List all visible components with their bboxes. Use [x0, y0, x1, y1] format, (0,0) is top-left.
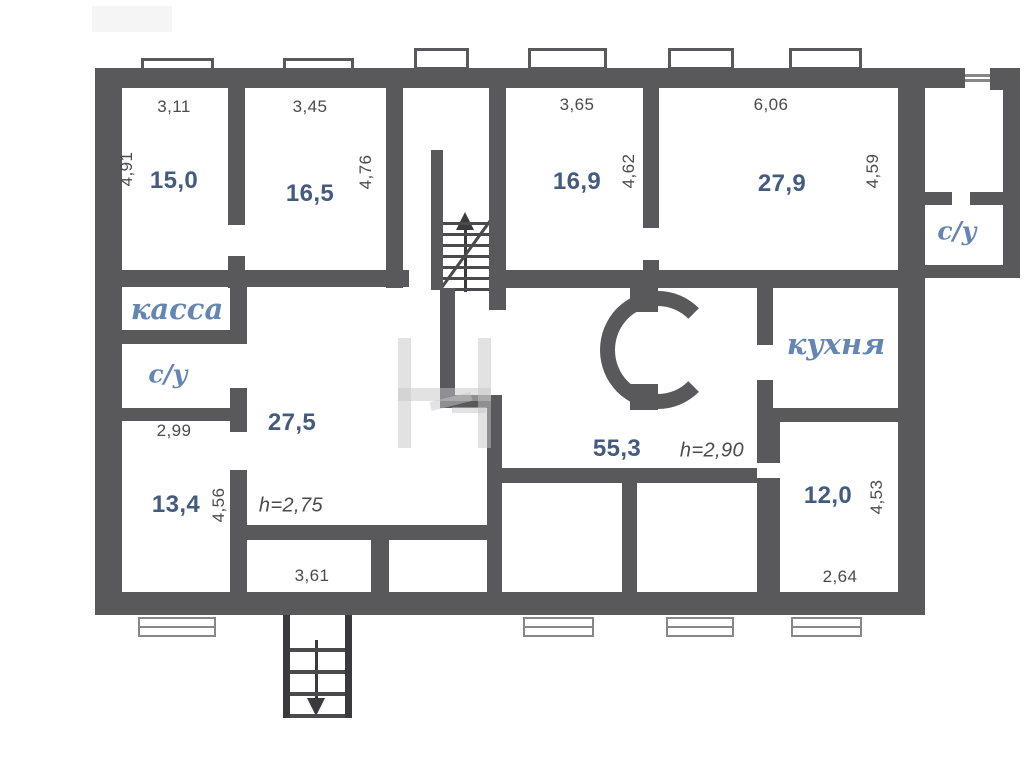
wall	[228, 88, 245, 225]
room-name-su-left: с/у	[148, 360, 187, 389]
wall	[386, 88, 403, 288]
stair-up-arrow	[456, 212, 474, 230]
window-bay	[528, 48, 607, 70]
entry-stair-tread	[283, 648, 352, 652]
wall	[95, 592, 925, 615]
window	[965, 70, 990, 86]
wall	[920, 265, 1010, 278]
curved-wall-niche	[600, 291, 716, 409]
stair-tread	[443, 266, 489, 269]
room-area-553: 55,3	[593, 435, 641, 463]
room-area-134: 13,4	[152, 491, 200, 519]
wall	[489, 88, 506, 310]
window-sill	[138, 617, 216, 637]
room-area-120: 12,0	[804, 482, 852, 510]
wall	[1003, 88, 1020, 278]
wall	[643, 88, 659, 228]
dim-width-room-165: 3,45	[293, 97, 328, 117]
stair-arrow-shaft	[464, 230, 467, 292]
room-area-279: 27,9	[758, 170, 806, 198]
wall	[230, 525, 502, 540]
entry-stair-tread	[283, 714, 352, 718]
dim-depth-room-120: 4,53	[867, 480, 887, 515]
watermark	[478, 338, 491, 448]
dim-width-room-150: 3,11	[157, 97, 190, 117]
wall	[643, 260, 659, 288]
wall	[622, 483, 637, 592]
dim-depth-room-169: 4,62	[619, 154, 639, 189]
stair-tread	[443, 277, 489, 280]
window-sill	[666, 617, 734, 637]
stair-tread	[443, 255, 489, 258]
dim-height-room-275: h=2,75	[259, 495, 323, 518]
wall	[757, 408, 898, 422]
window-sill	[791, 617, 862, 637]
wall	[757, 478, 780, 592]
window-bay	[414, 48, 469, 70]
dim-depth-room-279: 4,59	[863, 154, 883, 189]
dim-depth-room-134: 4,56	[209, 488, 229, 523]
wall	[898, 68, 925, 615]
wall	[230, 470, 247, 592]
room-area-165: 16,5	[286, 180, 334, 208]
wall	[757, 288, 773, 345]
watermark	[398, 338, 411, 448]
wall	[371, 540, 389, 592]
wall	[502, 468, 757, 483]
window-sill	[523, 617, 594, 637]
floor-plan: 3,11 4,91 15,0 3,45 4,76 16,5 3,65 4,62 …	[0, 0, 1024, 768]
wall	[489, 270, 925, 288]
watermark	[92, 6, 172, 32]
wall	[970, 192, 1003, 205]
entry-stair-rail	[345, 615, 352, 718]
room-name-kitchen: кухня	[787, 327, 885, 361]
dim-depth-room-165: 4,76	[356, 155, 376, 190]
room-name-su-right: с/у	[937, 217, 976, 246]
window-bay	[789, 48, 862, 70]
stair-tread	[443, 233, 489, 236]
wall	[230, 388, 247, 432]
wall	[95, 270, 409, 287]
wall	[990, 68, 1020, 90]
stair-tread	[443, 244, 489, 247]
entry-stair-tread	[283, 670, 352, 674]
wall	[757, 422, 780, 463]
wall	[431, 150, 443, 290]
stair-tread	[443, 222, 489, 225]
entry-stair-tread	[283, 692, 352, 696]
room-name-kassa: касса	[131, 292, 224, 326]
wall	[228, 256, 245, 288]
wall	[95, 68, 965, 88]
wall	[95, 68, 122, 615]
room-area-275: 27,5	[268, 409, 316, 437]
room-area-169: 16,9	[553, 168, 601, 196]
dim-width-room-120: 2,64	[823, 567, 858, 587]
dim-depth-room-150: 4,91	[117, 152, 137, 187]
entry-stair-rail	[283, 615, 290, 718]
dim-height-hall: h=2,90	[680, 440, 744, 463]
dim-width-vestibule: 3,61	[295, 566, 330, 586]
window-bay	[668, 48, 734, 70]
dim-width-room-169: 3,65	[560, 95, 595, 115]
wall	[757, 380, 773, 408]
room-area-150: 15,0	[150, 167, 198, 195]
dim-width-room-134: 2,99	[157, 421, 192, 441]
dim-width-room-279: 6,06	[754, 95, 789, 115]
